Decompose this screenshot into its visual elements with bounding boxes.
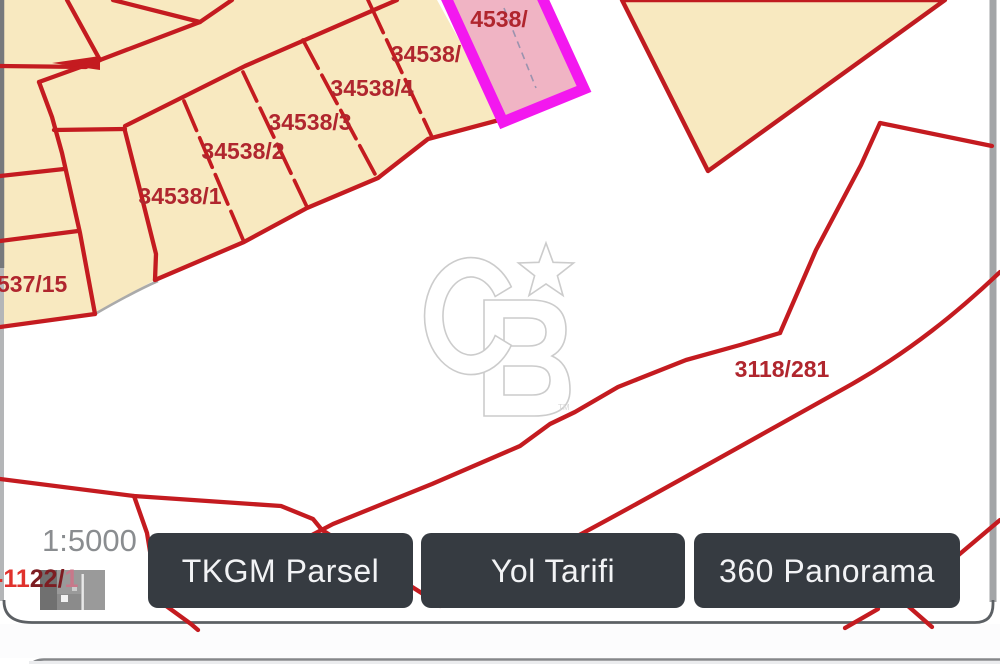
svg-text:34538/: 34538/ bbox=[391, 41, 462, 67]
svg-text:34538/2: 34538/2 bbox=[201, 138, 284, 164]
svg-text:34538/4: 34538/4 bbox=[330, 75, 413, 101]
svg-text:537/15: 537/15 bbox=[0, 271, 68, 297]
svg-text:-1122/1: -1122/1 bbox=[0, 565, 79, 593]
svg-text:1:5000: 1:5000 bbox=[42, 523, 137, 558]
svg-text:Yol Tarifi: Yol Tarifi bbox=[491, 553, 615, 589]
svg-text:TM: TM bbox=[558, 403, 570, 412]
svg-text:360 Panorama: 360 Panorama bbox=[719, 553, 935, 589]
svg-text:3118/281: 3118/281 bbox=[735, 356, 830, 382]
svg-text:4538/: 4538/ bbox=[470, 6, 528, 32]
svg-text:34538/3: 34538/3 bbox=[268, 109, 351, 135]
svg-text:TKGM Parsel: TKGM Parsel bbox=[182, 553, 380, 589]
svg-text:34538/1: 34538/1 bbox=[138, 183, 221, 209]
